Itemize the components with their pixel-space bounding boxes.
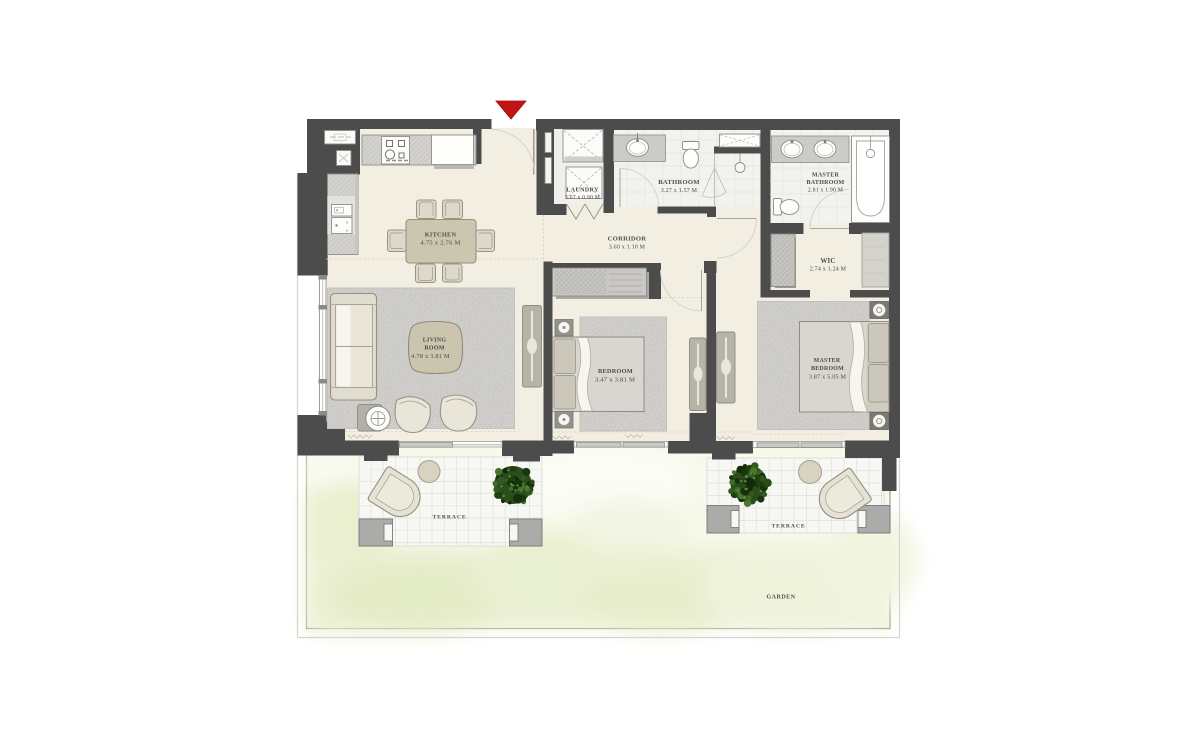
svg-text:3.47 x 3.81 M: 3.47 x 3.81 M [595, 377, 635, 384]
svg-text:4.75 x 2.76 M: 4.75 x 2.76 M [420, 240, 460, 247]
svg-text:LAUNDRY: LAUNDRY [566, 187, 599, 194]
svg-text:BATHROOM: BATHROOM [658, 179, 700, 186]
svg-text:WIC: WIC [820, 258, 835, 265]
svg-text:KITCHEN: KITCHEN [425, 232, 457, 239]
svg-text:3.60 x 1.10 M: 3.60 x 1.10 M [609, 245, 646, 251]
svg-text:BEDROOM: BEDROOM [598, 368, 633, 375]
svg-text:CORRIDOR: CORRIDOR [608, 236, 647, 243]
svg-text:LIVING: LIVING [423, 338, 447, 344]
svg-text:BEDROOM: BEDROOM [811, 366, 844, 372]
svg-text:3.27 x 1.57 M: 3.27 x 1.57 M [661, 188, 698, 194]
svg-text:3.67 x 0.90 M: 3.67 x 0.90 M [565, 195, 600, 201]
svg-text:ROOM: ROOM [424, 346, 444, 352]
svg-text:GARDEN: GARDEN [766, 595, 795, 601]
svg-text:TERRACE: TERRACE [432, 515, 466, 521]
svg-text:BATHROOM: BATHROOM [807, 180, 845, 186]
svg-text:2.81 x 1.90 M: 2.81 x 1.90 M [808, 188, 843, 194]
svg-text:2.74 x 1.24 M: 2.74 x 1.24 M [810, 267, 847, 273]
svg-text:4.78 x 3.81 M: 4.78 x 3.81 M [411, 353, 450, 360]
svg-text:3.87 x 5.05 M: 3.87 x 5.05 M [809, 374, 847, 381]
svg-text:TERRACE: TERRACE [771, 524, 805, 530]
svg-text:MASTER: MASTER [814, 358, 841, 364]
svg-text:MASTER: MASTER [812, 173, 840, 179]
